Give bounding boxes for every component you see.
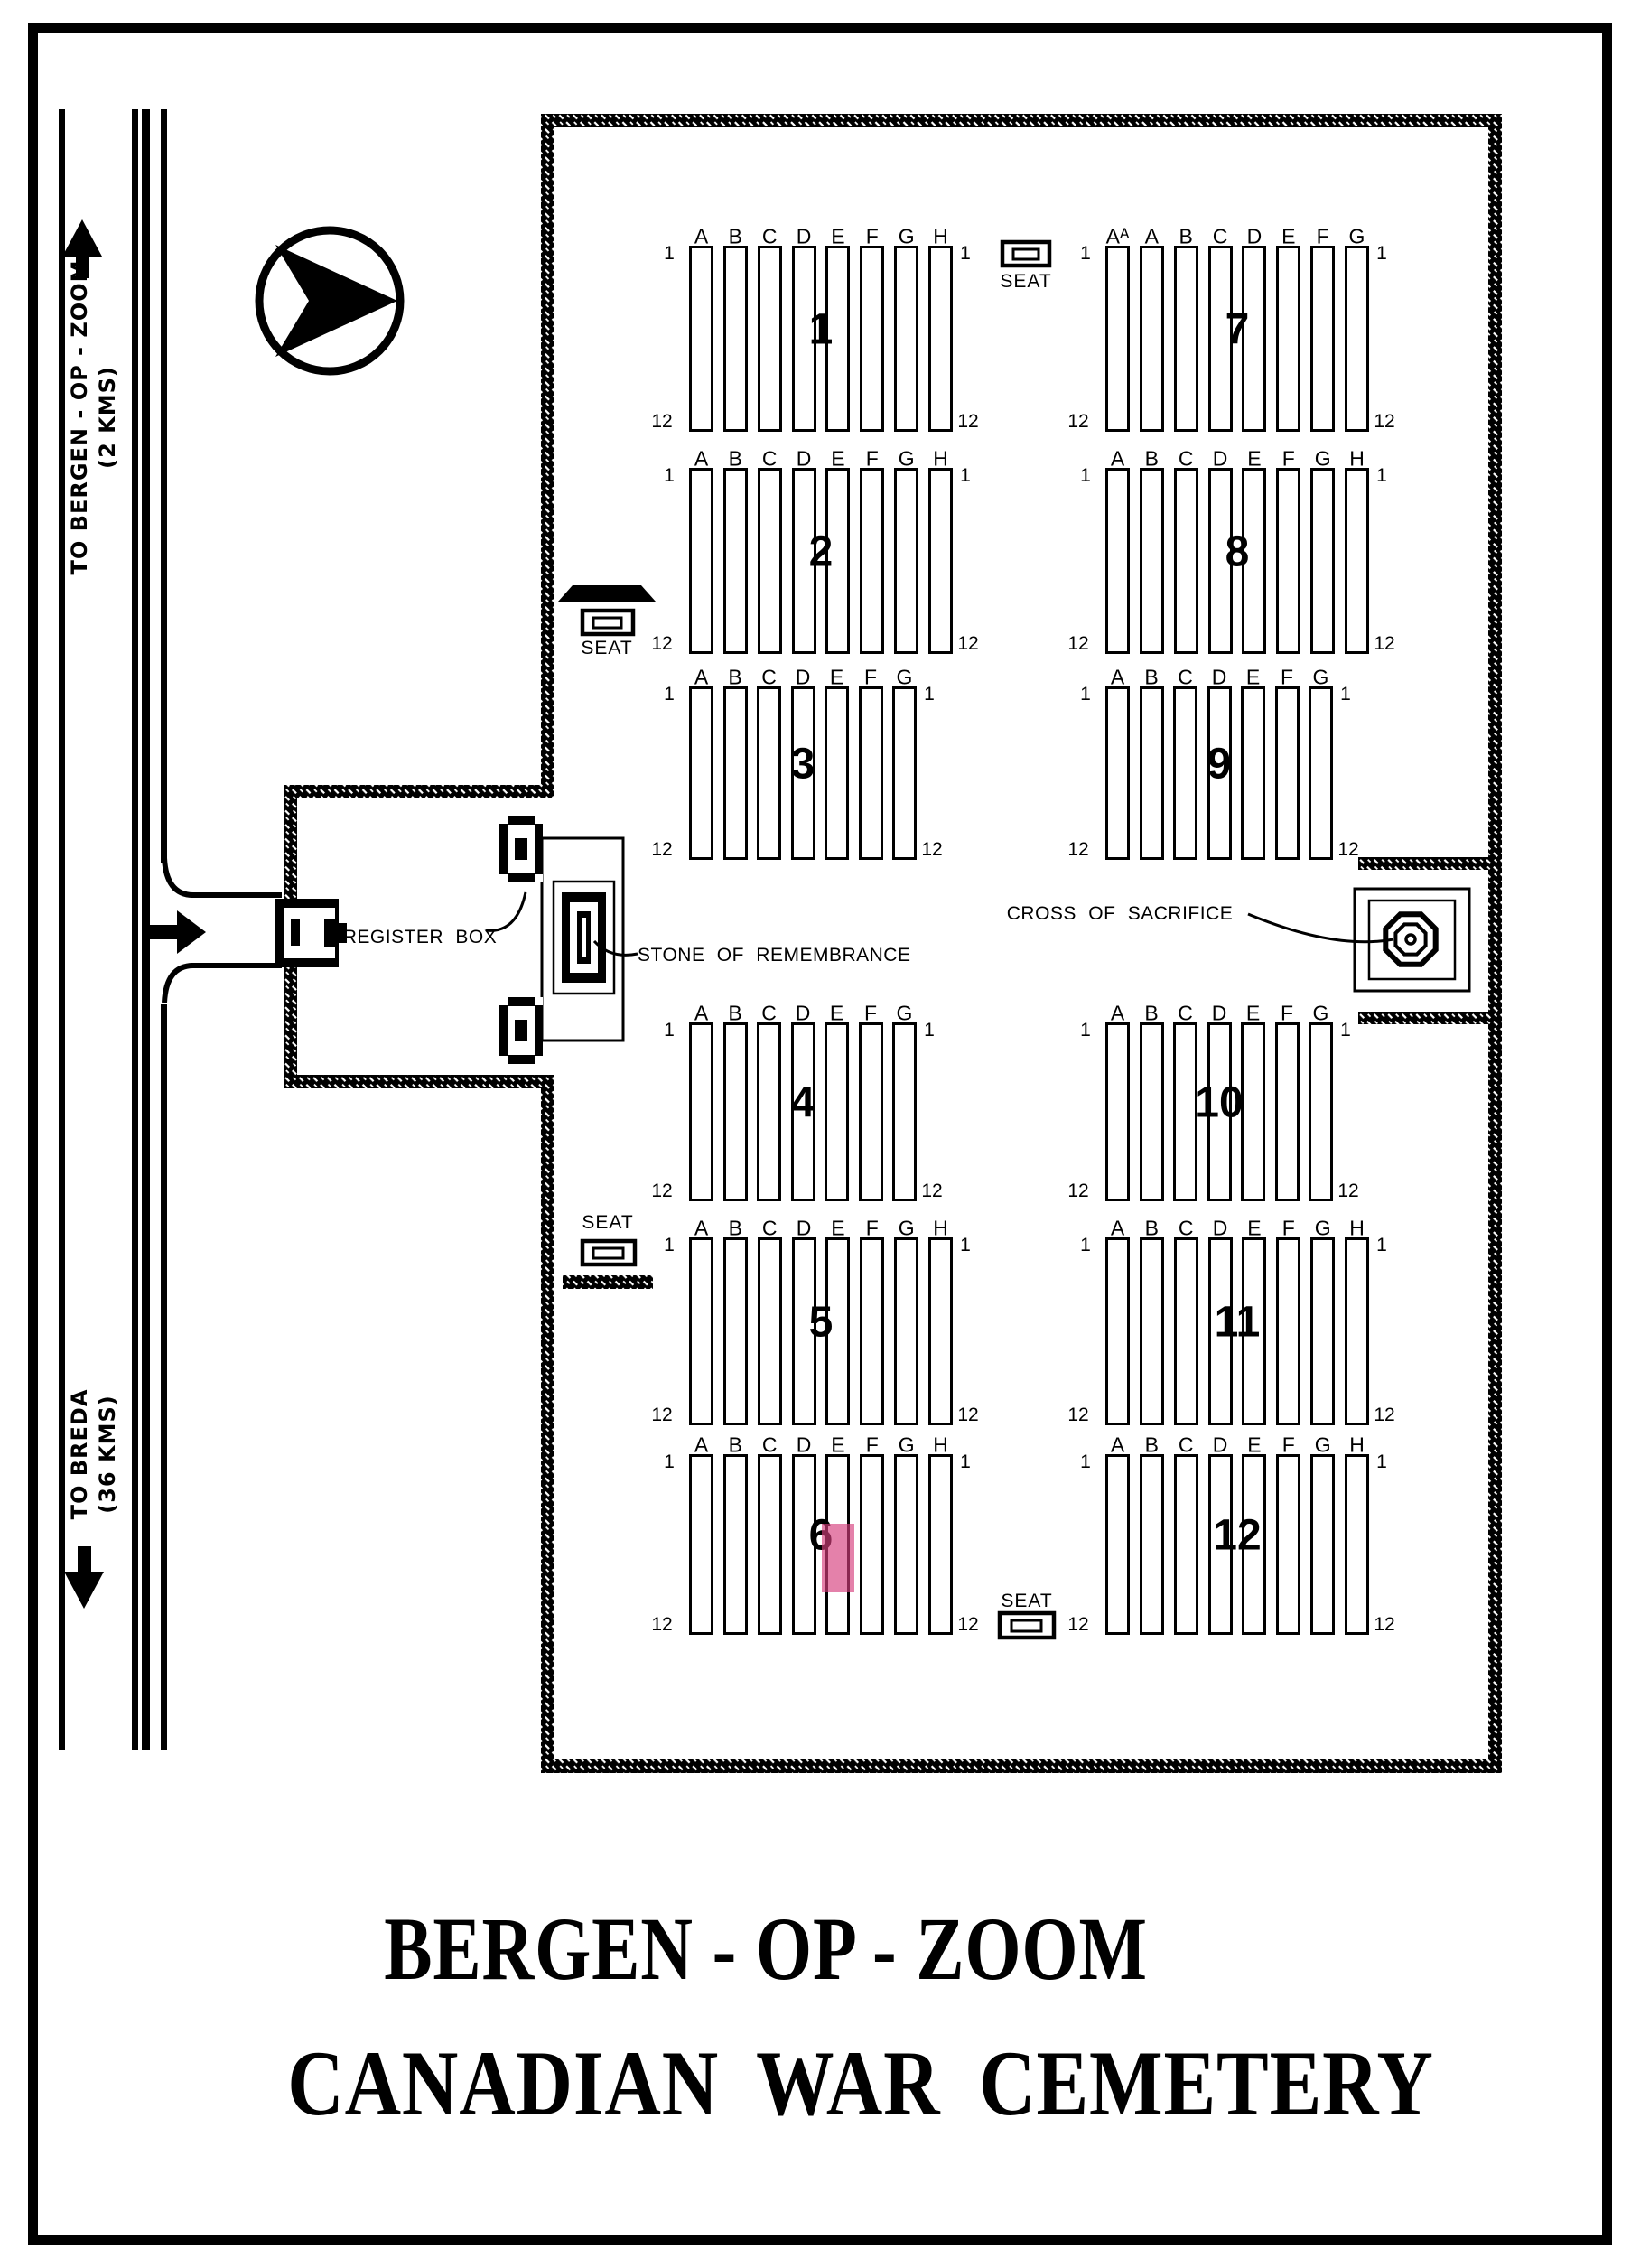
grave-row-8-F (1276, 468, 1300, 654)
section-number: 3 (791, 740, 815, 789)
section-number: 4 (791, 1078, 815, 1128)
grave-row-11-F (1276, 1237, 1300, 1425)
entrance-arrow-icon (143, 910, 206, 954)
grave-row-5-C (758, 1237, 782, 1425)
grave-row-1-A (689, 246, 713, 432)
row-number: 1 (664, 243, 675, 265)
row-number: 1 (924, 684, 935, 705)
row-number: 1 (1080, 1451, 1091, 1473)
row-number: 12 (651, 411, 672, 433)
grave-row-11-A (1105, 1237, 1130, 1425)
register-box-pointer (486, 892, 526, 930)
row-number: 12 (1067, 1614, 1088, 1636)
grave-row-10-B (1140, 1022, 1164, 1201)
row-number: 1 (1340, 1020, 1351, 1041)
seat-label: SEAT (1000, 271, 1051, 293)
grave-row-7-A (1140, 246, 1164, 432)
seat-icon (563, 1241, 653, 1289)
row-number: 1 (664, 1020, 675, 1041)
grave-row-5-A (689, 1237, 713, 1425)
row-number: 1 (664, 465, 675, 487)
row-number: 12 (651, 1405, 672, 1426)
register-box-label: REGISTER BOX (343, 927, 498, 948)
grave-row-12-H (1345, 1454, 1369, 1635)
grave-row-10-G (1309, 1022, 1333, 1201)
stone-of-remembrance-label: STONE OF REMEMBRANCE (638, 945, 910, 966)
grave-row-6-F (860, 1454, 884, 1635)
grave-row-7-F (1310, 246, 1335, 432)
row-number: 1 (664, 1235, 675, 1256)
row-number: 12 (1067, 1181, 1088, 1202)
road-label-breda-line2: (36 KMS) (94, 1389, 122, 1520)
row-number: 12 (1374, 633, 1394, 655)
grave-row-2-F (860, 468, 884, 654)
register-box-icon (499, 997, 543, 1064)
section-number: 10 (1195, 1078, 1243, 1128)
row-number: 12 (921, 1181, 942, 1202)
grave-row-2-H (928, 468, 953, 654)
row-number: 1 (1376, 243, 1387, 265)
row-number: 12 (921, 839, 942, 861)
grave-row-6-A (689, 1454, 713, 1635)
grave-row-10-E (1241, 1022, 1265, 1201)
grave-row-12-F (1276, 1454, 1300, 1635)
row-number: 12 (651, 839, 672, 861)
grave-row-8-B (1140, 468, 1164, 654)
row-number: 12 (957, 411, 978, 433)
row-number: 1 (1080, 465, 1091, 487)
row-number: 1 (1340, 684, 1351, 705)
grave-row-4-C (757, 1022, 781, 1201)
grave-row-7-B (1174, 246, 1198, 432)
cemetery-plan-page: ABCDEFGH1112121ABCDEFGH1112122ABCDEFG111… (0, 0, 1640, 2268)
grave-row-10-F (1275, 1022, 1300, 1201)
row-number: 1 (960, 465, 971, 487)
cross-of-sacrifice-label: CROSS OF SACRIFICE (1007, 903, 1234, 925)
section-number: 11 (1215, 1297, 1261, 1347)
grave-row-7-G (1345, 246, 1369, 432)
grave-row-3-E (825, 686, 849, 860)
seat-label: SEAT (1001, 1591, 1052, 1612)
register-box-icon (499, 816, 543, 882)
grave-row-4-F (859, 1022, 883, 1201)
grave-row-3-C (757, 686, 781, 860)
grave-row-2-C (758, 468, 782, 654)
road-label-bergen: TO BERGEN - OP - ZOOM (2 KMS) (66, 260, 122, 575)
section-number: 12 (1213, 1511, 1261, 1561)
grave-row-12-G (1310, 1454, 1335, 1635)
bench-back (558, 585, 656, 602)
seat-icon (1000, 1613, 1054, 1638)
row-number: 12 (957, 633, 978, 655)
row-number: 12 (1067, 633, 1088, 655)
grave-row-9-G (1309, 686, 1333, 860)
grave-row-1-C (758, 246, 782, 432)
grave-row-12-B (1140, 1454, 1164, 1635)
row-number: 12 (1374, 411, 1394, 433)
road-label-breda-line1: TO BREDA (66, 1389, 94, 1520)
grave-row-4-B (723, 1022, 748, 1201)
grave-row-4-G (892, 1022, 917, 1201)
row-number: 12 (1067, 1405, 1088, 1426)
grave-row-6-H (928, 1454, 953, 1635)
cross-of-sacrifice-icon (1355, 889, 1469, 991)
grave-row-9-A (1105, 686, 1130, 860)
row-number: 1 (1376, 465, 1387, 487)
section-number: 9 (1207, 740, 1232, 789)
grave-row-11-G (1310, 1237, 1335, 1425)
grave-row-12-A (1105, 1454, 1130, 1635)
grave-row-5-H (928, 1237, 953, 1425)
row-number: 12 (651, 1614, 672, 1636)
row-number: 1 (1080, 1235, 1091, 1256)
row-number: 12 (651, 633, 672, 655)
grave-row-10-C (1173, 1022, 1197, 1201)
entrance-gate-icon (275, 899, 347, 967)
grave-row-11-C (1174, 1237, 1198, 1425)
row-number: 12 (1337, 1181, 1358, 1202)
grave-row-1-F (860, 246, 884, 432)
grave-row-11-B (1140, 1237, 1164, 1425)
grave-row-7-E (1276, 246, 1300, 432)
grave-row-6-B (723, 1454, 748, 1635)
grave-row-8-G (1310, 468, 1335, 654)
grave-row-10-A (1105, 1022, 1130, 1201)
section-number: 8 (1225, 527, 1250, 576)
grave-row-6-C (758, 1454, 782, 1635)
row-number: 1 (664, 1451, 675, 1473)
grave-row-9-E (1241, 686, 1265, 860)
row-number: 12 (957, 1614, 978, 1636)
section-number: 7 (1225, 304, 1250, 354)
row-number: 1 (1080, 243, 1091, 265)
grave-row-9-C (1173, 686, 1197, 860)
grave-row-3-B (723, 686, 748, 860)
road-label-breda: TO BREDA (36 KMS) (66, 1389, 122, 1520)
grave-row-2-A (689, 468, 713, 654)
grave-row-7-A (1105, 246, 1130, 432)
grave-row-9-B (1140, 686, 1164, 860)
cemetery-title-line2: CANADIAN WAR CEMETERY (287, 2030, 1434, 2137)
row-number: 1 (1080, 1020, 1091, 1041)
row-number: 12 (1067, 839, 1088, 861)
row-number: 1 (1376, 1235, 1387, 1256)
row-number: 12 (1337, 839, 1358, 861)
grave-row-3-G (892, 686, 917, 860)
grave-row-1-G (894, 246, 918, 432)
grave-row-2-B (723, 468, 748, 654)
grave-row-2-G (894, 468, 918, 654)
row-number: 1 (1376, 1451, 1387, 1473)
highlighted-grave (822, 1524, 854, 1593)
grave-row-8-A (1105, 468, 1130, 654)
grave-row-1-H (928, 246, 953, 432)
grave-row-5-F (860, 1237, 884, 1425)
row-number: 1 (960, 1235, 971, 1256)
row-number: 12 (957, 1405, 978, 1426)
north-arrow-icon (259, 230, 400, 371)
row-number: 1 (664, 684, 675, 705)
grave-row-6-G (894, 1454, 918, 1635)
road-arrow-down-icon (64, 1546, 104, 1609)
road-label-bergen-line1: TO BERGEN - OP - ZOOM (66, 260, 94, 575)
row-number: 1 (960, 243, 971, 265)
row-number: 1 (1080, 684, 1091, 705)
section-number: 5 (809, 1297, 834, 1347)
grave-row-12-C (1174, 1454, 1198, 1635)
section-number: 2 (809, 527, 834, 576)
grave-row-4-A (689, 1022, 713, 1201)
seat-label: SEAT (582, 1212, 633, 1234)
grave-row-3-A (689, 686, 713, 860)
grave-row-5-G (894, 1237, 918, 1425)
stone-of-remembrance-icon (554, 882, 614, 994)
row-number: 12 (1374, 1614, 1394, 1636)
grave-row-9-F (1275, 686, 1300, 860)
grave-row-8-H (1345, 468, 1369, 654)
section-number: 1 (809, 304, 834, 354)
cemetery-title-line1: BERGEN - OP - ZOOM (384, 1897, 1148, 2001)
row-number: 12 (1067, 411, 1088, 433)
grave-row-3-F (859, 686, 883, 860)
seat-label: SEAT (581, 638, 632, 659)
road-label-bergen-line2: (2 KMS) (94, 260, 122, 575)
grave-row-1-B (723, 246, 748, 432)
seat-icon (558, 585, 656, 634)
grave-row-4-E (825, 1022, 849, 1201)
grave-row-8-C (1174, 468, 1198, 654)
row-number: 12 (651, 1181, 672, 1202)
grave-row-11-H (1345, 1237, 1369, 1425)
row-number: 1 (960, 1451, 971, 1473)
row-number: 12 (1374, 1405, 1394, 1426)
row-number: 1 (924, 1020, 935, 1041)
grave-row-5-B (723, 1237, 748, 1425)
seat-icon (1002, 242, 1049, 266)
